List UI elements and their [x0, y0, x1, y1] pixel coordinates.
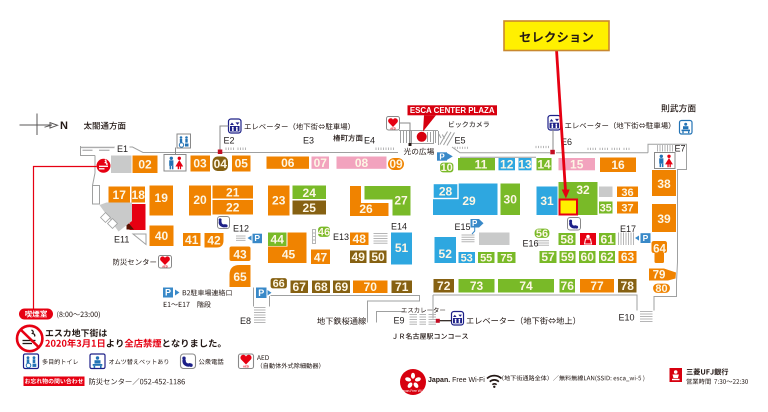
svg-text:60: 60 — [581, 250, 595, 264]
svg-text:13: 13 — [518, 157, 532, 171]
svg-text:46: 46 — [318, 227, 330, 239]
svg-text:E17: E17 — [620, 224, 636, 234]
svg-text:06: 06 — [281, 156, 295, 170]
svg-text:29: 29 — [462, 194, 476, 208]
svg-text:37: 37 — [621, 203, 633, 215]
svg-text:75: 75 — [500, 253, 512, 265]
svg-text:66: 66 — [273, 278, 285, 290]
svg-text:59: 59 — [561, 250, 575, 264]
svg-text:N: N — [60, 120, 68, 132]
svg-text:Japan.Free Wi-Fi: Japan.Free Wi-Fi — [401, 389, 426, 393]
svg-text:E4: E4 — [364, 135, 375, 145]
svg-text:62: 62 — [600, 250, 614, 264]
svg-text:P: P — [165, 288, 171, 298]
svg-text:23: 23 — [272, 194, 286, 208]
svg-text:E13: E13 — [333, 232, 349, 242]
svg-text:P: P — [254, 233, 260, 243]
svg-text:65: 65 — [233, 270, 247, 284]
svg-text:49: 49 — [352, 250, 366, 264]
svg-text:03: 03 — [193, 157, 207, 171]
svg-text:11: 11 — [475, 157, 488, 171]
svg-text:40: 40 — [155, 229, 169, 243]
svg-text:P: P — [472, 219, 478, 228]
svg-text:08: 08 — [355, 156, 369, 170]
svg-text:57: 57 — [541, 250, 555, 264]
svg-text:AED: AED — [243, 364, 249, 368]
svg-text:51: 51 — [395, 241, 409, 255]
svg-text:39: 39 — [657, 212, 671, 226]
svg-text:E11: E11 — [114, 234, 129, 244]
svg-text:Japan. Free Wi-Fi: Japan. Free Wi-Fi — [428, 377, 485, 384]
svg-text:E2: E2 — [224, 135, 235, 145]
svg-text:77: 77 — [590, 279, 604, 293]
svg-text:17: 17 — [113, 188, 127, 202]
svg-text:E7: E7 — [675, 144, 686, 154]
svg-text:P: P — [258, 288, 264, 298]
svg-text:32: 32 — [576, 183, 590, 197]
svg-text:15: 15 — [570, 157, 584, 171]
svg-text:AED: AED — [162, 264, 168, 268]
svg-text:04: 04 — [214, 157, 228, 171]
svg-text:58: 58 — [560, 233, 574, 247]
svg-text:43: 43 — [233, 248, 247, 262]
svg-text:05: 05 — [235, 157, 249, 171]
svg-text:22: 22 — [226, 201, 240, 215]
svg-text:12: 12 — [500, 157, 514, 171]
svg-text:41: 41 — [185, 233, 199, 247]
svg-text:74: 74 — [519, 279, 533, 293]
svg-text:02: 02 — [138, 158, 152, 172]
svg-text:27: 27 — [394, 194, 408, 208]
svg-text:P: P — [643, 233, 649, 243]
svg-text:50: 50 — [371, 250, 385, 264]
svg-text:E14: E14 — [391, 221, 407, 231]
svg-text:45: 45 — [282, 248, 296, 262]
svg-text:30: 30 — [504, 193, 518, 207]
svg-text:69: 69 — [335, 280, 349, 294]
svg-text:14: 14 — [537, 157, 551, 171]
svg-text:E8: E8 — [240, 316, 251, 326]
svg-text:E9: E9 — [394, 316, 405, 326]
svg-text:53: 53 — [461, 253, 473, 265]
svg-text:P: P — [439, 152, 445, 161]
svg-text:20: 20 — [193, 193, 207, 207]
svg-text:31: 31 — [540, 194, 554, 208]
svg-text:E10: E10 — [619, 312, 635, 322]
svg-text:E15: E15 — [455, 222, 471, 232]
svg-text:48: 48 — [353, 232, 367, 246]
svg-text:55: 55 — [480, 253, 492, 265]
svg-text:73: 73 — [470, 279, 484, 293]
svg-text:63: 63 — [621, 250, 635, 264]
svg-text:47: 47 — [314, 251, 328, 265]
svg-text:36: 36 — [621, 187, 633, 199]
svg-text:ESCA CENTER PLAZA: ESCA CENTER PLAZA — [410, 106, 495, 115]
svg-text:07: 07 — [314, 156, 328, 170]
svg-text:35: 35 — [600, 203, 612, 215]
svg-text:67: 67 — [293, 280, 307, 294]
svg-text:E3: E3 — [303, 135, 314, 145]
svg-text:AED: AED — [390, 126, 396, 130]
svg-text:10: 10 — [441, 162, 453, 174]
svg-text:19: 19 — [155, 191, 169, 205]
svg-text:21: 21 — [226, 186, 240, 200]
svg-text:72: 72 — [437, 279, 451, 293]
svg-text:E16: E16 — [523, 238, 539, 248]
svg-text:16: 16 — [611, 158, 625, 172]
svg-text:76: 76 — [561, 279, 575, 293]
svg-text:70: 70 — [364, 280, 378, 294]
svg-text:80: 80 — [655, 283, 667, 295]
svg-text:61: 61 — [601, 233, 615, 247]
svg-text:09: 09 — [389, 157, 403, 171]
svg-text:38: 38 — [657, 177, 671, 191]
svg-text:24: 24 — [303, 186, 317, 200]
svg-text:44: 44 — [271, 233, 285, 247]
svg-text:E1: E1 — [117, 144, 128, 154]
svg-text:E12: E12 — [233, 223, 249, 233]
svg-text:64: 64 — [653, 244, 666, 256]
svg-text:78: 78 — [621, 279, 635, 293]
svg-text:28: 28 — [439, 185, 453, 199]
svg-text:71: 71 — [395, 280, 409, 294]
svg-text:68: 68 — [314, 280, 328, 294]
svg-text:52: 52 — [439, 247, 453, 261]
svg-text:18: 18 — [132, 188, 146, 202]
svg-text:25: 25 — [303, 201, 317, 215]
svg-text:79: 79 — [653, 270, 666, 282]
svg-text:42: 42 — [207, 234, 221, 248]
svg-text:E5: E5 — [455, 135, 466, 145]
svg-text:26: 26 — [359, 202, 373, 216]
